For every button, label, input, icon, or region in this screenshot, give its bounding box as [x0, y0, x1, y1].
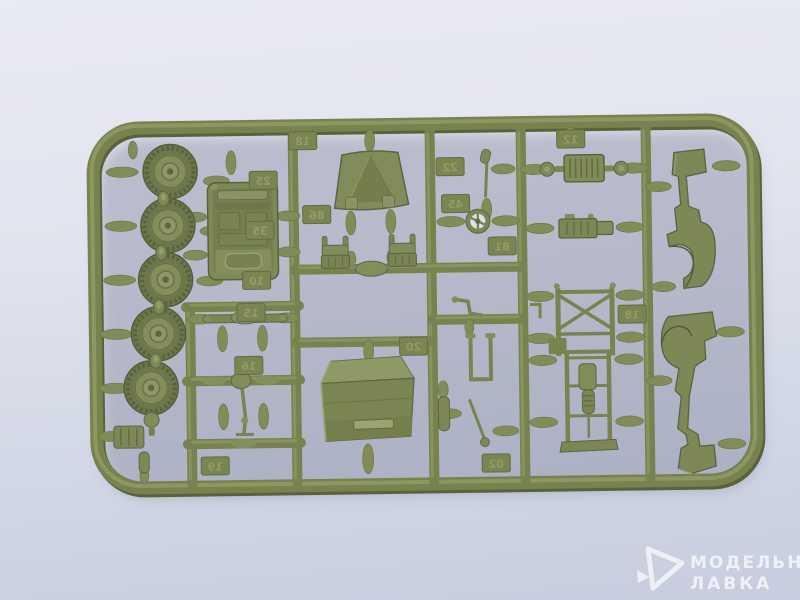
part-number-tag: 25	[249, 171, 277, 189]
svg-text:45: 45	[448, 198, 463, 211]
watermark-line2: ЛАВКА	[690, 574, 772, 594]
chassis-drivetrain-part	[559, 353, 618, 452]
windshield-part	[334, 151, 409, 211]
part-number-tag: 18	[289, 131, 317, 149]
part-number-tag: 45	[441, 194, 469, 212]
svg-text:35: 35	[252, 225, 267, 238]
hub-knob-part	[150, 353, 161, 368]
sprue-photo: 25 35 10 15 16 19 18 22 45 81 20 02 18 1…	[0, 0, 800, 600]
part-number-tag: 22	[436, 157, 464, 175]
filler-cap-part	[144, 412, 159, 427]
hub-knob-part	[158, 191, 169, 206]
storage-box-part	[321, 356, 415, 441]
hub-knob-part	[156, 245, 167, 260]
watermark-logo	[637, 549, 682, 588]
svg-text:18: 18	[624, 308, 639, 321]
part-number-tag: 12	[557, 130, 585, 148]
part-number-tag: 15	[237, 303, 265, 321]
svg-text:25: 25	[256, 175, 271, 188]
svg-text:86: 86	[309, 209, 325, 222]
tire-part	[124, 360, 179, 415]
svg-text:19: 19	[208, 460, 223, 473]
muffler-part	[438, 397, 449, 431]
small-cylinder-part	[139, 452, 149, 473]
part-number-tag: 86	[303, 205, 331, 223]
watermark-line1: МОДЕЛЬНАЯ	[690, 553, 800, 573]
part-number-tag: 16	[235, 356, 263, 374]
part-number-tag: 20	[399, 337, 427, 355]
part-number-tag: 10	[243, 271, 271, 289]
seat-cushion-part	[355, 261, 387, 276]
svg-text:10: 10	[249, 275, 265, 288]
svg-text:81: 81	[494, 240, 509, 253]
svg-text:22: 22	[442, 161, 457, 174]
part-number-tag: 81	[488, 237, 516, 255]
tire-part	[141, 198, 196, 253]
svg-text:20: 20	[406, 341, 422, 354]
watermark: МОДЕЛЬНАЯ ЛАВКА	[637, 549, 800, 594]
part-number-tag: 02	[482, 454, 510, 472]
part-number-tag: 35	[246, 221, 274, 239]
svg-text:15: 15	[243, 307, 258, 320]
hub-knob-part	[153, 299, 164, 314]
photo-stage: 25 35 10 15 16 19 18 22 45 81 20 02 18 1…	[0, 0, 800, 600]
svg-text:18: 18	[295, 135, 310, 148]
svg-text:16: 16	[241, 360, 257, 373]
part-number-tag: 18	[618, 305, 646, 323]
tire-part	[143, 144, 198, 199]
svg-text:02: 02	[488, 457, 503, 470]
svg-text:12: 12	[563, 133, 578, 146]
steering-wheel-part	[466, 209, 490, 233]
tire-part	[138, 252, 193, 307]
part-number-tag: 19	[201, 457, 229, 475]
